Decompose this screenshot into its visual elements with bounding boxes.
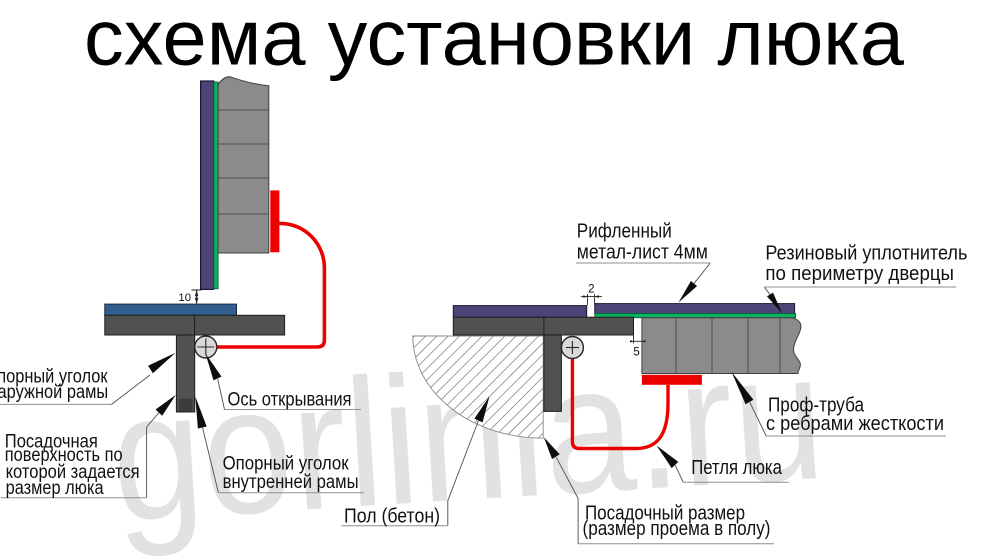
svg-text:схема установки люка: схема установки люка	[84, 0, 905, 82]
svg-text:Пол (бетон): Пол (бетон)	[344, 506, 440, 528]
svg-text:размер люка: размер люка	[6, 478, 104, 499]
svg-text:с ребрами жесткости: с ребрами жесткости	[766, 413, 944, 435]
svg-text:(размер проема в полу): (размер проема в полу)	[583, 518, 771, 540]
svg-text:по периметру дверцы: по периметру дверцы	[765, 263, 954, 285]
svg-text:2: 2	[588, 284, 594, 296]
svg-text:наружной рамы: наружной рамы	[0, 382, 108, 403]
svg-text:Резиновый уплотнитель: Резиновый уплотнитель	[765, 242, 967, 264]
svg-text:метал-лист 4мм: метал-лист 4мм	[577, 241, 708, 263]
svg-text:Петля люка: Петля люка	[691, 457, 782, 479]
svg-text:10: 10	[178, 292, 191, 304]
svg-text:внутренней рамы: внутренней рамы	[223, 472, 359, 493]
svg-text:5: 5	[633, 347, 639, 359]
svg-text:Ось открывания: Ось открывания	[228, 389, 352, 410]
svg-text:Рифленный: Рифленный	[577, 220, 672, 242]
